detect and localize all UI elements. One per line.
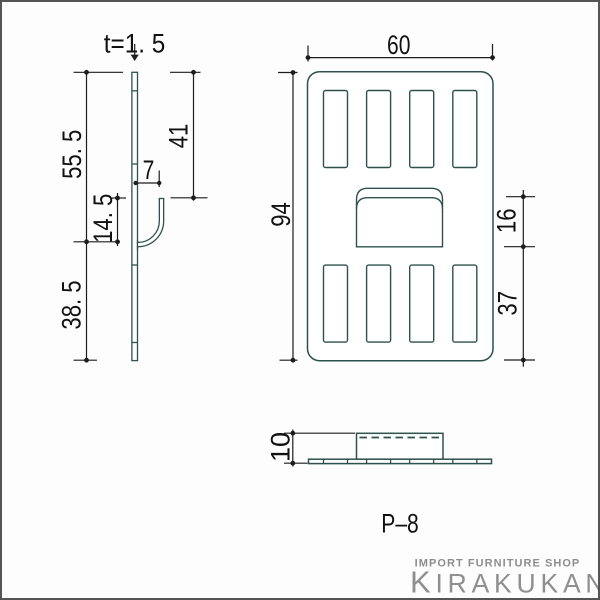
svg-text:38. 5: 38. 5 — [58, 280, 88, 329]
svg-text:14. 5: 14. 5 — [89, 194, 119, 243]
svg-text:t=1. 5: t=1. 5 — [104, 29, 165, 58]
svg-text:7: 7 — [143, 156, 155, 186]
svg-text:41: 41 — [165, 124, 195, 149]
svg-text:60: 60 — [387, 31, 410, 61]
svg-text:37: 37 — [494, 291, 524, 316]
svg-text:94: 94 — [267, 202, 297, 227]
svg-text:P–8: P–8 — [381, 509, 418, 539]
svg-text:16: 16 — [493, 208, 523, 233]
svg-text:55. 5: 55. 5 — [58, 130, 88, 179]
svg-text:KIRAKUKAN: KIRAKUKAN — [410, 565, 600, 600]
svg-text:10: 10 — [266, 432, 296, 462]
